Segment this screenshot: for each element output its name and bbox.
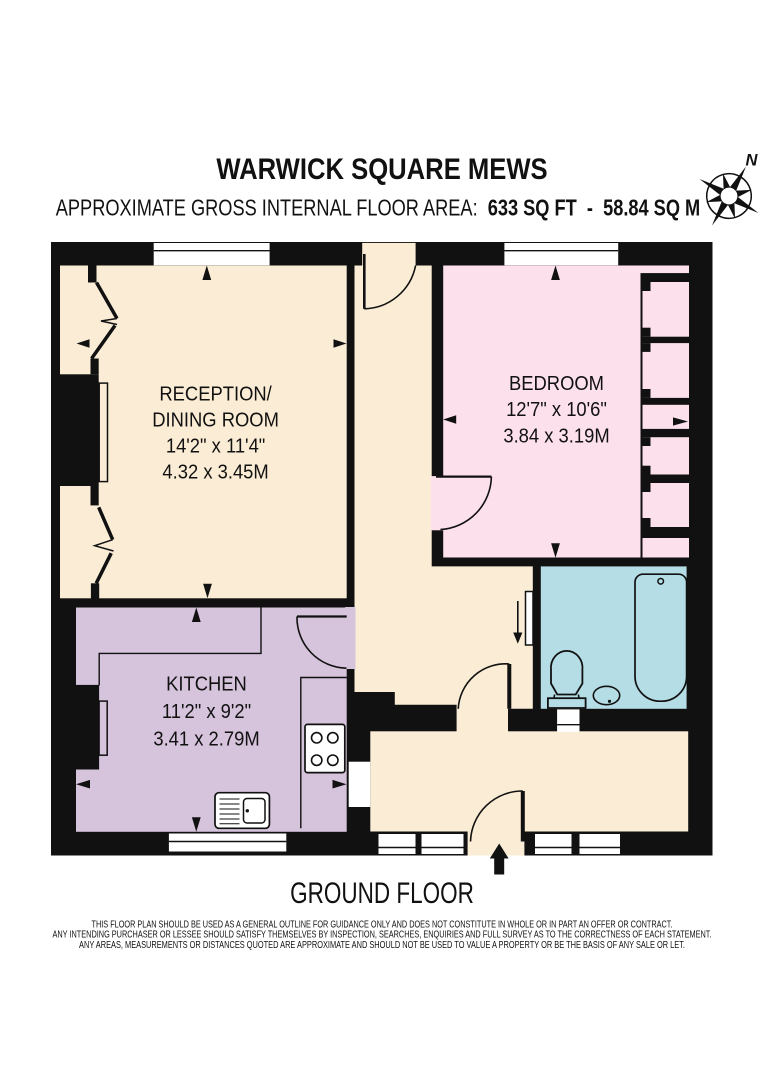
svg-text:KITCHEN: KITCHEN <box>166 674 247 696</box>
svg-text:RECEPTION/: RECEPTION/ <box>159 384 272 406</box>
svg-text:3.41 x 2.79M: 3.41 x 2.79M <box>153 729 259 751</box>
svg-text:APPROXIMATE GROSS INTERNAL FLO: APPROXIMATE GROSS INTERNAL FLOOR AREA: 6… <box>56 196 700 222</box>
svg-text:N: N <box>746 152 759 170</box>
svg-text:ANY AREAS, MEASUREMENTS OR DIS: ANY AREAS, MEASUREMENTS OR DISTANCES QUO… <box>79 939 685 950</box>
svg-text:DINING ROOM: DINING ROOM <box>152 410 279 432</box>
svg-text:WARWICK SQUARE MEWS: WARWICK SQUARE MEWS <box>216 152 547 185</box>
svg-text:12'7" x 10'6": 12'7" x 10'6" <box>506 399 607 421</box>
svg-text:BEDROOM: BEDROOM <box>509 374 604 396</box>
svg-text:GROUND FLOOR: GROUND FLOOR <box>290 876 474 910</box>
svg-text:4.32 x 3.45M: 4.32 x 3.45M <box>162 462 268 484</box>
svg-text:14'2" x 11'4": 14'2" x 11'4" <box>166 436 265 458</box>
svg-text:3.84 x 3.19M: 3.84 x 3.19M <box>503 426 609 448</box>
svg-text:11'2" x 9'2": 11'2" x 9'2" <box>162 701 251 723</box>
